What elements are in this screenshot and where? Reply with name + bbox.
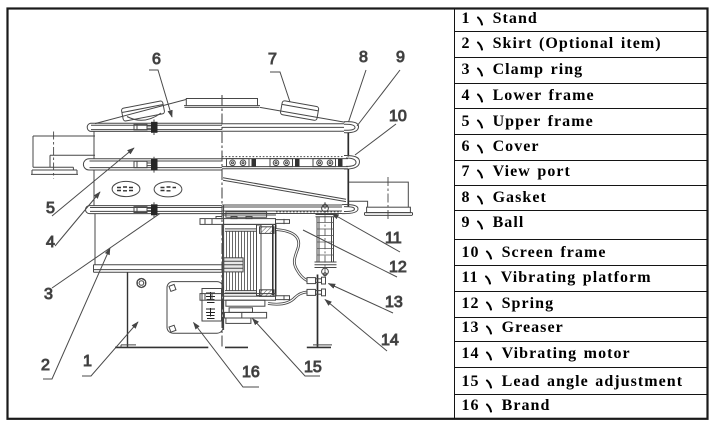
svg-text:14: 14 <box>381 332 399 349</box>
svg-text:1: 1 <box>83 353 92 370</box>
svg-text:6: 6 <box>152 51 161 68</box>
svg-text:10: 10 <box>389 108 407 125</box>
svg-text:13: 13 <box>385 294 403 311</box>
svg-text:3: 3 <box>44 286 53 303</box>
svg-text:15: 15 <box>304 359 322 376</box>
svg-text:16: 16 <box>242 364 260 381</box>
svg-text:7: 7 <box>268 51 277 68</box>
svg-text:2: 2 <box>41 357 50 374</box>
svg-text:9: 9 <box>396 49 405 66</box>
svg-text:12: 12 <box>389 259 407 276</box>
svg-text:4: 4 <box>46 234 55 251</box>
svg-text:8: 8 <box>359 49 368 66</box>
